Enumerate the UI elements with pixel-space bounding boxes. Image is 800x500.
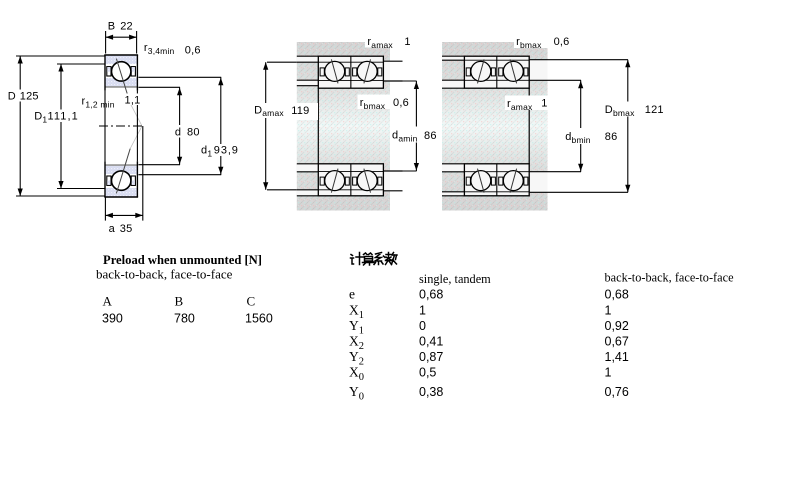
svg-text:22: 22: [120, 21, 133, 33]
svg-text:86: 86: [424, 130, 437, 142]
svg-text:single, tandem: single, tandem: [419, 272, 491, 286]
svg-text:1,1: 1,1: [125, 95, 141, 107]
svg-text:0,87: 0,87: [419, 350, 443, 364]
svg-text:1: 1: [419, 304, 426, 318]
svg-text:390: 390: [102, 311, 123, 325]
svg-text:B: B: [175, 294, 184, 309]
svg-text:121: 121: [645, 104, 664, 116]
svg-text:A: A: [103, 294, 113, 309]
svg-text:1,41: 1,41: [605, 350, 629, 364]
svg-text:a: a: [109, 223, 116, 235]
svg-text:35: 35: [120, 223, 133, 235]
svg-text:B: B: [108, 21, 116, 33]
svg-text:0,92: 0,92: [605, 319, 629, 333]
svg-text:Preload when unmounted [N]: Preload when unmounted [N]: [103, 253, 262, 267]
svg-text:d: d: [175, 126, 181, 138]
svg-text:86: 86: [605, 131, 618, 143]
svg-text:1: 1: [404, 36, 410, 48]
svg-text:93,9: 93,9: [214, 145, 239, 157]
svg-text:C: C: [247, 294, 256, 309]
svg-text:e: e: [349, 287, 355, 302]
svg-text:80: 80: [187, 126, 200, 138]
svg-text:111,1: 111,1: [48, 111, 79, 123]
svg-text:1: 1: [605, 304, 612, 318]
svg-text:D: D: [8, 90, 16, 102]
svg-text:0,67: 0,67: [605, 335, 629, 349]
svg-text:0: 0: [419, 319, 426, 333]
svg-text:0,68: 0,68: [605, 288, 629, 302]
svg-text:1: 1: [541, 98, 547, 110]
svg-text:0,6: 0,6: [393, 97, 409, 109]
svg-text:125: 125: [20, 90, 39, 102]
svg-text:back-to-back, face-to-face: back-to-back, face-to-face: [96, 267, 233, 282]
svg-text:780: 780: [174, 311, 195, 325]
svg-text:0,41: 0,41: [419, 335, 443, 349]
svg-text:0,5: 0,5: [419, 366, 436, 380]
svg-text:0,6: 0,6: [185, 45, 201, 57]
svg-text:119: 119: [291, 105, 309, 117]
svg-text:1560: 1560: [245, 311, 273, 325]
svg-text:0,76: 0,76: [605, 385, 629, 399]
svg-text:0,38: 0,38: [419, 385, 443, 399]
svg-text:1: 1: [605, 366, 612, 380]
svg-text:0,68: 0,68: [419, 288, 443, 302]
svg-text:back-to-back, face-to-face: back-to-back, face-to-face: [605, 271, 735, 285]
svg-text:0,6: 0,6: [554, 36, 570, 48]
